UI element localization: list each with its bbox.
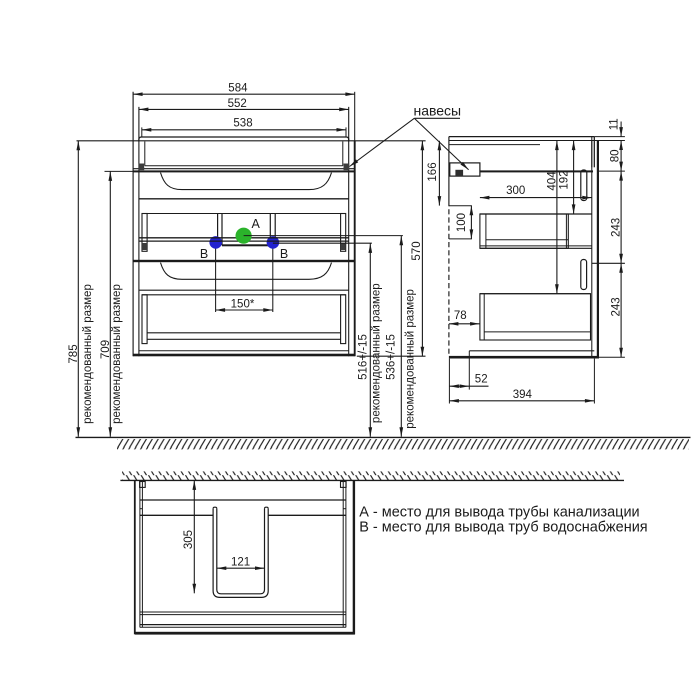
svg-text:570: 570: [411, 241, 423, 260]
svg-text:150*: 150*: [231, 299, 255, 311]
svg-text:785: 785: [68, 344, 80, 363]
svg-text:100: 100: [456, 213, 468, 232]
svg-text:78: 78: [454, 310, 467, 322]
svg-text:11: 11: [609, 118, 621, 130]
svg-text:В - место для вывода труб водо: В - место для вывода труб водоснабжения: [359, 519, 647, 535]
svg-text:рекомендованный размер: рекомендованный размер: [111, 284, 123, 424]
svg-text:243: 243: [611, 297, 623, 316]
svg-text:300: 300: [506, 185, 525, 197]
svg-text:рекомендованный размер: рекомендованный размер: [371, 283, 383, 423]
svg-text:192: 192: [559, 170, 571, 189]
svg-text:305: 305: [183, 530, 195, 549]
svg-text:B: B: [280, 247, 288, 261]
svg-text:52: 52: [475, 374, 488, 386]
svg-text:552: 552: [228, 98, 247, 110]
svg-text:рекомендованный размер: рекомендованный размер: [82, 284, 94, 424]
svg-text:121: 121: [231, 557, 250, 569]
svg-text:243: 243: [611, 218, 623, 237]
svg-text:516+/-15: 516+/-15: [357, 334, 369, 380]
svg-text:навесы: навесы: [413, 103, 461, 119]
svg-text:404: 404: [546, 171, 558, 191]
svg-text:B: B: [200, 247, 208, 261]
svg-text:166: 166: [427, 162, 439, 181]
svg-text:584: 584: [228, 83, 248, 95]
svg-text:394: 394: [513, 389, 533, 401]
svg-text:536+/-15: 536+/-15: [386, 334, 398, 380]
svg-text:А - место для вывода трубы кан: А - место для вывода трубы канализации: [359, 504, 639, 520]
svg-text:538: 538: [233, 118, 252, 130]
svg-text:рекомендованный размер: рекомендованный размер: [404, 289, 416, 429]
svg-text:A: A: [252, 217, 261, 231]
svg-text:80: 80: [609, 149, 621, 162]
